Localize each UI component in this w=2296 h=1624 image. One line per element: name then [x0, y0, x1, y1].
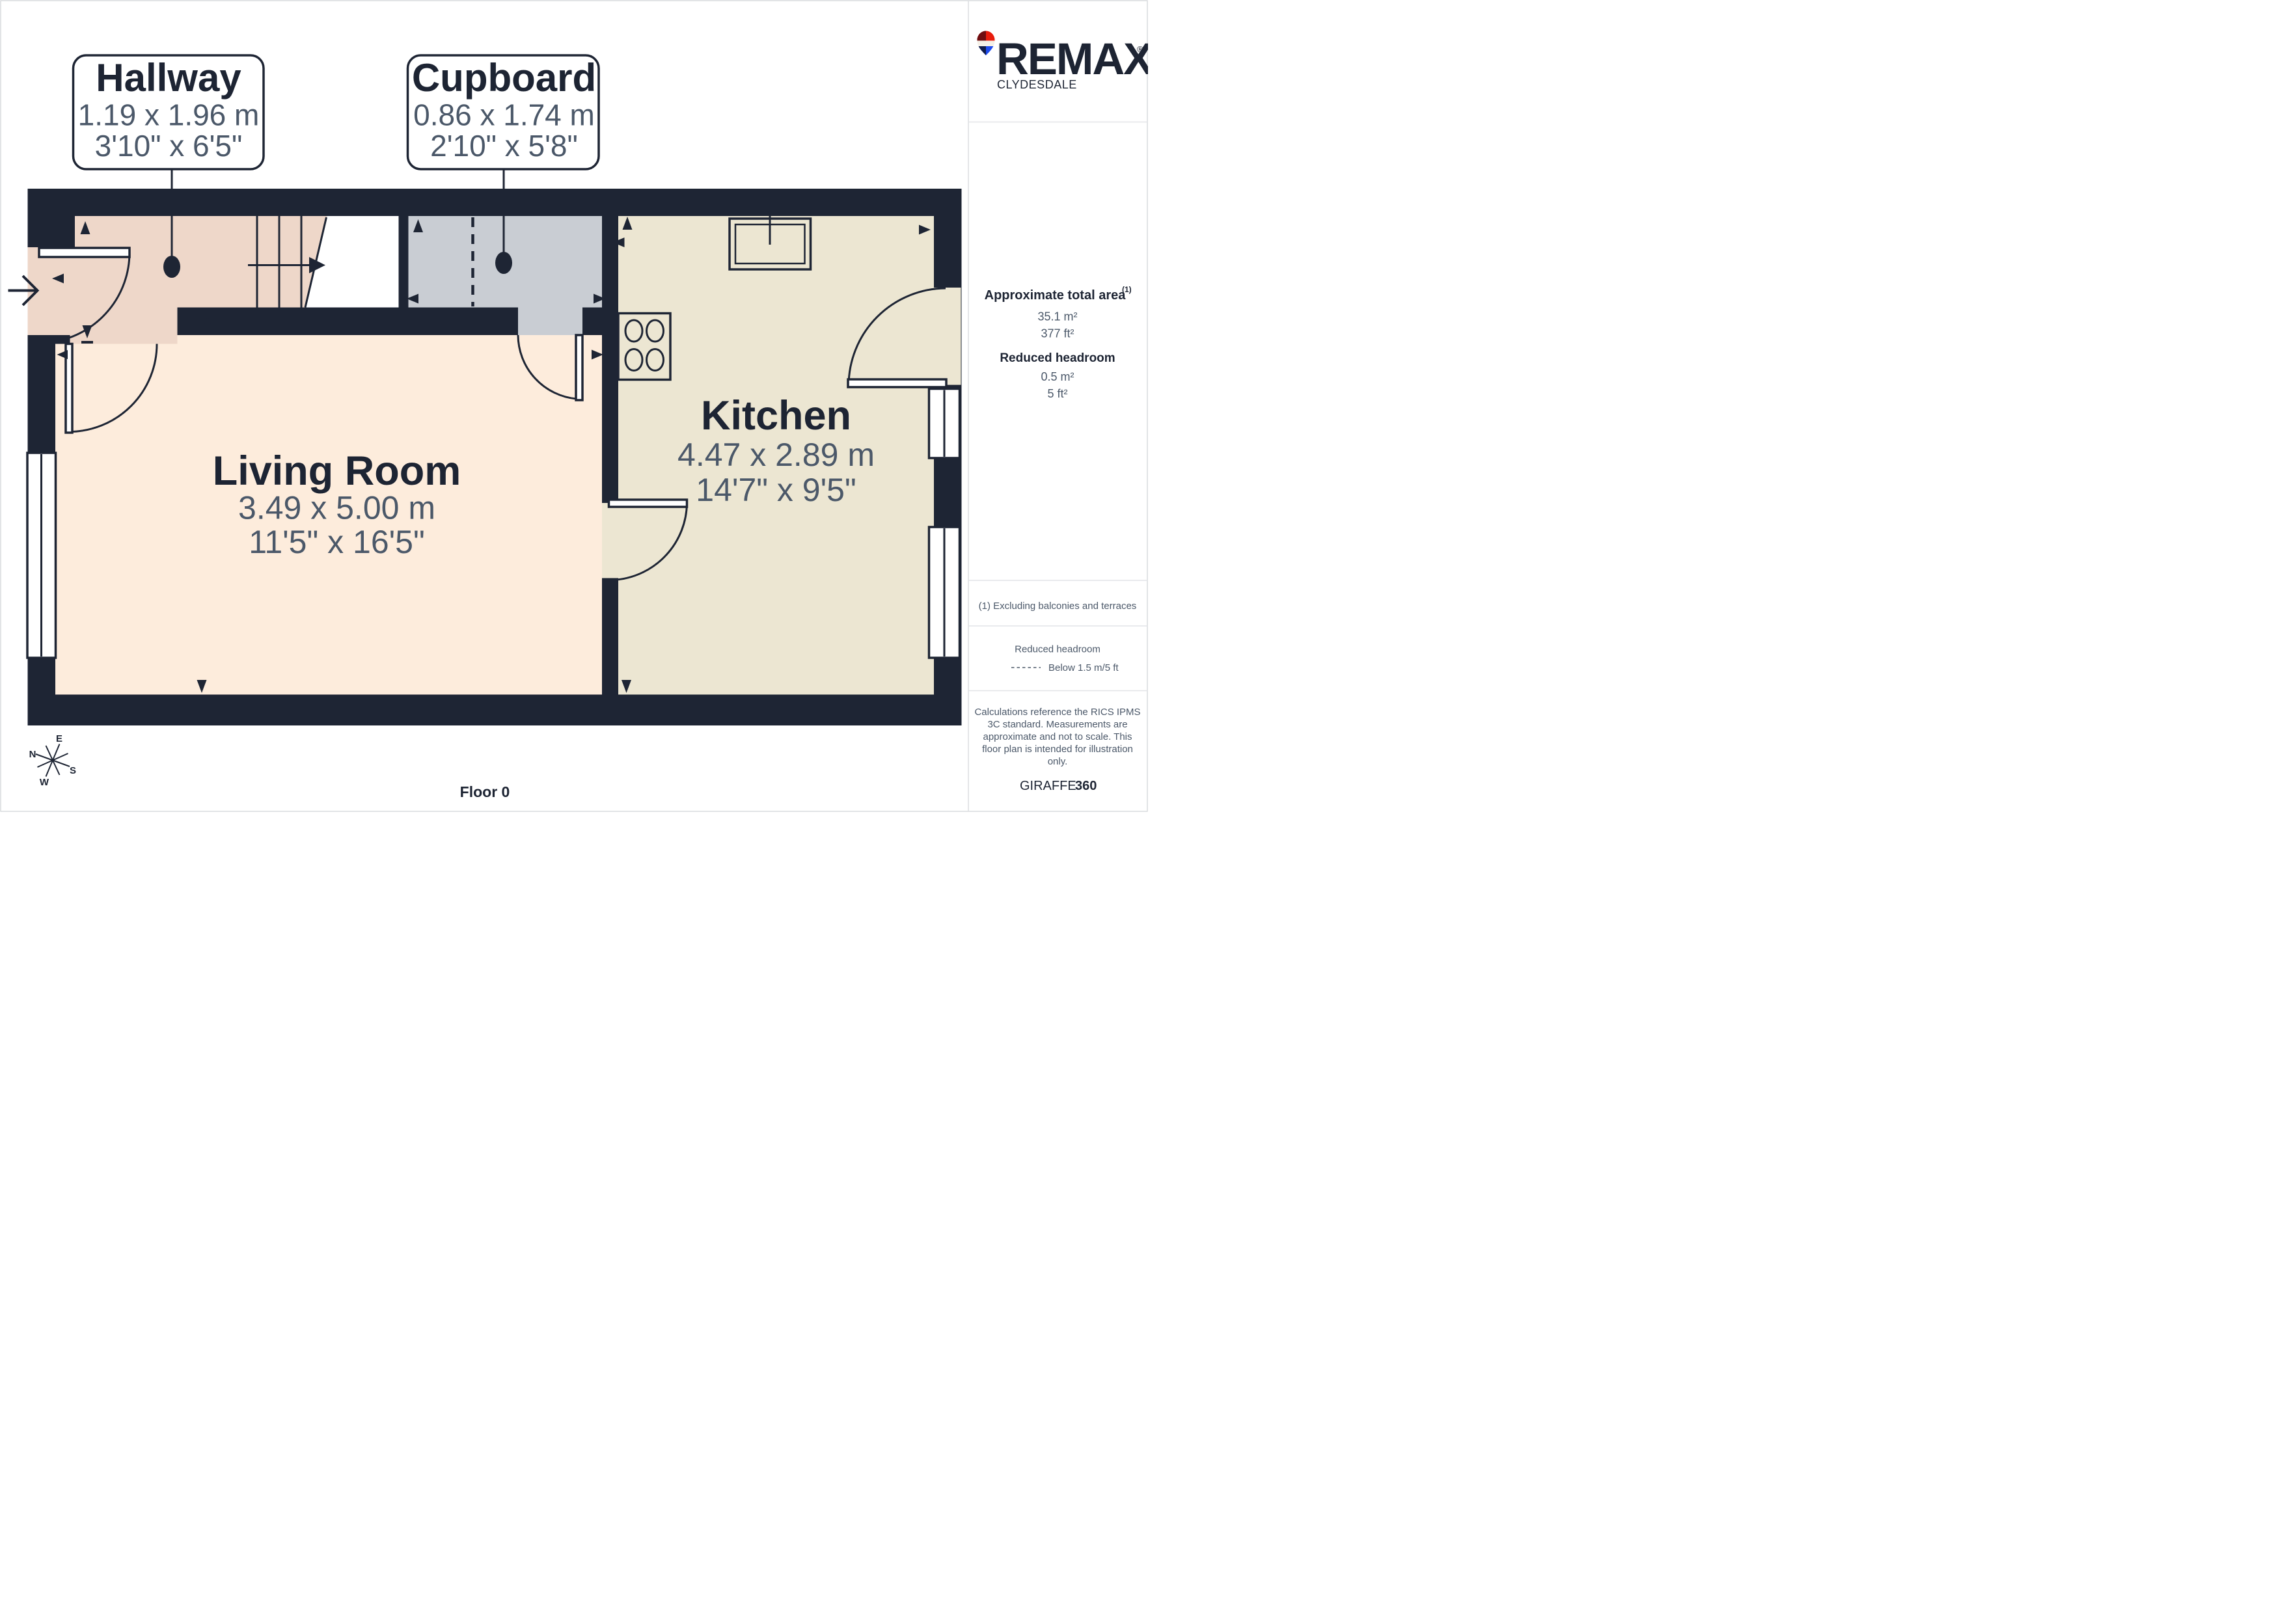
- hallway-dim-ft: 3'10" x 6'5": [95, 129, 243, 163]
- compass-w: W: [40, 777, 49, 788]
- giraffe360-logo: GIRAFFE 360: [1020, 779, 1097, 793]
- remax-balloon-icon: [977, 30, 995, 56]
- total-area-superscript: (1): [1122, 285, 1132, 294]
- credit-brand: GIRAFFE: [1020, 779, 1076, 793]
- kitchen-dim-m: 4.47 x 2.89 m: [677, 437, 875, 473]
- kitchen-label-group: Kitchen 4.47 x 2.89 m 14'7" x 9'5": [677, 393, 875, 508]
- cupboard-door-opening: [518, 308, 582, 336]
- total-area-ft2: 377 ft²: [1041, 327, 1074, 340]
- reduced-headroom-m2: 0.5 m²: [1041, 370, 1074, 383]
- total-area-title: Approximate total area: [985, 288, 1127, 303]
- floor-plan: Hallway 1.19 x 1.96 m 3'10" x 6'5" Cupbo…: [8, 55, 962, 725]
- hallway-label: Hallway: [96, 56, 241, 100]
- window-living-left: [27, 453, 56, 658]
- compass: N E S W: [29, 733, 76, 788]
- living-room-dim-ft: 11'5" x 16'5": [249, 524, 425, 560]
- kitchen-label: Kitchen: [701, 393, 851, 439]
- floor-label: Floor 0: [460, 783, 510, 800]
- door-leaf: [39, 248, 130, 257]
- area-stats: Approximate total area (1) 35.1 m² 377 f…: [985, 285, 1132, 400]
- disclaimer: Calculations reference the RICS IPMS 3C …: [974, 707, 1140, 767]
- disclaimer-line: floor plan is intended for illustration: [982, 744, 1133, 755]
- brand-subtitle: CLYDESDALE: [997, 78, 1077, 91]
- floorplan-page: Hallway 1.19 x 1.96 m 3'10" x 6'5" Cupbo…: [0, 0, 1148, 812]
- credit-suffix: 360: [1075, 779, 1097, 793]
- door-leaf: [848, 379, 946, 387]
- cupboard-dim-ft: 2'10" x 5'8": [430, 129, 578, 163]
- leader-dot: [163, 256, 180, 278]
- total-area-m2: 35.1 m²: [1037, 310, 1077, 323]
- reduced-headroom-ft2: 5 ft²: [1047, 387, 1067, 400]
- window-kitchen-right-lower: [929, 527, 960, 658]
- window-kitchen-right-upper: [929, 389, 960, 459]
- living-room-label: Living Room: [213, 448, 461, 494]
- cupboard-dim-m: 0.86 x 1.74 m: [413, 98, 595, 132]
- door-leaf: [609, 500, 687, 507]
- floorplan-canvas: Hallway 1.19 x 1.96 m 3'10" x 6'5" Cupbo…: [0, 0, 1148, 812]
- cupboard-label: Cupboard: [412, 56, 596, 100]
- footnote: (1) Excluding balconies and terraces: [979, 601, 1137, 612]
- reduced-headroom-title: Reduced headroom: [1000, 351, 1115, 365]
- disclaimer-line: only.: [1048, 756, 1068, 767]
- disclaimer-line: approximate and not to scale. This: [983, 731, 1132, 742]
- compass-s: S: [70, 765, 76, 776]
- callout-cupboard: Cupboard 0.86 x 1.74 m 2'10" x 5'8": [408, 55, 599, 169]
- legend: Reduced headroom Below 1.5 m/5 ft: [1011, 644, 1119, 674]
- door-leaf: [576, 335, 582, 400]
- kitchen-door-opening: [602, 503, 618, 578]
- brand-name: REMAX: [996, 34, 1148, 84]
- leader-dot: [495, 252, 512, 274]
- kitchen-dim-ft: 14'7" x 9'5": [696, 472, 856, 508]
- legend-title: Reduced headroom: [1015, 644, 1100, 655]
- hallway-dim-m: 1.19 x 1.96 m: [78, 98, 260, 132]
- sidebar: REMAX ® CLYDESDALE Approximate total are…: [968, 1, 1148, 811]
- living-room-label-group: Living Room 3.49 x 5.00 m 11'5" x 16'5": [213, 448, 461, 560]
- brand-registered-mark: ®: [1137, 44, 1143, 54]
- disclaimer-line: 3C standard. Measurements are: [987, 719, 1127, 730]
- remax-logo: REMAX ® CLYDESDALE: [977, 30, 1149, 91]
- compass-e: E: [56, 733, 62, 744]
- compass-n: N: [29, 749, 36, 760]
- kitchen-exterior-door-opening: [934, 288, 961, 385]
- living-room-dim-m: 3.49 x 5.00 m: [238, 490, 435, 526]
- callout-hallway: Hallway 1.19 x 1.96 m 3'10" x 6'5": [74, 55, 264, 169]
- legend-item: Below 1.5 m/5 ft: [1048, 662, 1119, 673]
- disclaimer-line: Calculations reference the RICS IPMS: [974, 707, 1140, 718]
